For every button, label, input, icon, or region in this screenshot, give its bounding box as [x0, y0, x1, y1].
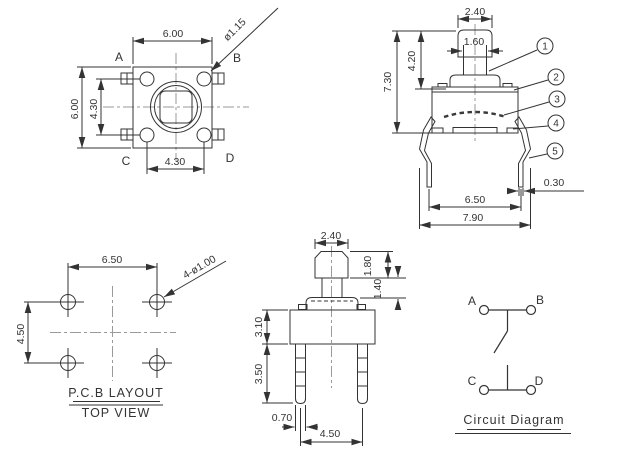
circuit-diagram-texts: A B C D Circuit Diagram [463, 293, 564, 427]
dim-total-height: 7.30 [382, 72, 394, 93]
dim-front-pin-width: 0.70 [272, 412, 293, 424]
terminal-c [480, 386, 489, 395]
pcb-layout-view [24, 261, 226, 405]
callout-number-4: 4 [553, 119, 559, 130]
dim-leg-span-inner: 6.50 [465, 194, 486, 206]
dim-leg-thickness: 0.30 [544, 177, 565, 189]
dim-hole-span-horizontal: 6.50 [102, 254, 123, 266]
terminal-label-b: B [536, 293, 544, 307]
corner-label-a: A [115, 50, 123, 64]
dim-pin-span-bottom: 4.30 [165, 156, 186, 168]
pcb-layout-title: P.C.B LAYOUT [68, 386, 164, 400]
front-view-texts: 2.40 1.80 1.40 3.10 3.50 0.70 4.50 [253, 230, 384, 440]
dim-actuator-height: 4.20 [406, 51, 418, 72]
pcb-layout-texts: 6.50 4.50 4-ø1.00 P.C.B LAYOUT TOP VIEW [15, 253, 218, 420]
pcb-layout-subtitle: TOP VIEW [82, 406, 151, 420]
callout-number-1: 1 [542, 42, 548, 53]
terminal-b [527, 306, 536, 315]
dim-cap-width: 2.40 [465, 6, 486, 18]
dim-leg-span-outer: 7.90 [463, 212, 484, 224]
terminal-label-d: D [535, 374, 544, 388]
dim-left-height: 6.00 [69, 99, 81, 120]
terminal-label-a: A [468, 294, 476, 308]
front-body [290, 310, 375, 344]
corner-label-b: B [233, 51, 241, 65]
dim-front-stem-height: 1.40 [372, 279, 384, 300]
top-view-texts: 6.00 6.00 4.30 4.30 ø1.15 A B C D [69, 16, 249, 168]
dim-hole-callout: 4-ø1.00 [181, 253, 218, 282]
top-view-centerlines [103, 53, 249, 161]
engineering-drawing: 6.00 6.00 4.30 4.30 ø1.15 A B C D [0, 0, 629, 450]
terminal-label-c: C [468, 374, 477, 388]
dim-front-body-height: 3.10 [253, 317, 265, 338]
corner-label-c: C [122, 154, 131, 168]
dim-front-pin-length: 3.50 [253, 364, 265, 385]
dim-hole-span-vertical: 4.50 [15, 324, 27, 345]
dim-front-pin-span: 4.50 [320, 428, 341, 440]
corner-label-d: D [226, 151, 235, 165]
dim-stem-width: 1.60 [464, 36, 485, 48]
callout-number-2: 2 [553, 73, 559, 84]
switch-arm [494, 331, 508, 353]
tact-switch-drawing: 6.00 6.00 4.30 4.30 ø1.15 A B C D [0, 0, 629, 450]
dim-front-cap-height: 1.80 [362, 256, 374, 277]
terminal-a [480, 306, 489, 315]
circuit-diagram-title: Circuit Diagram [463, 413, 564, 427]
dim-top-width: 6.00 [163, 28, 184, 40]
dim-pin-span-vertical: 4.30 [88, 99, 100, 120]
callout-number-5: 5 [552, 147, 558, 158]
dim-front-cap-width: 2.40 [321, 230, 342, 242]
callout-number-3: 3 [554, 95, 560, 106]
